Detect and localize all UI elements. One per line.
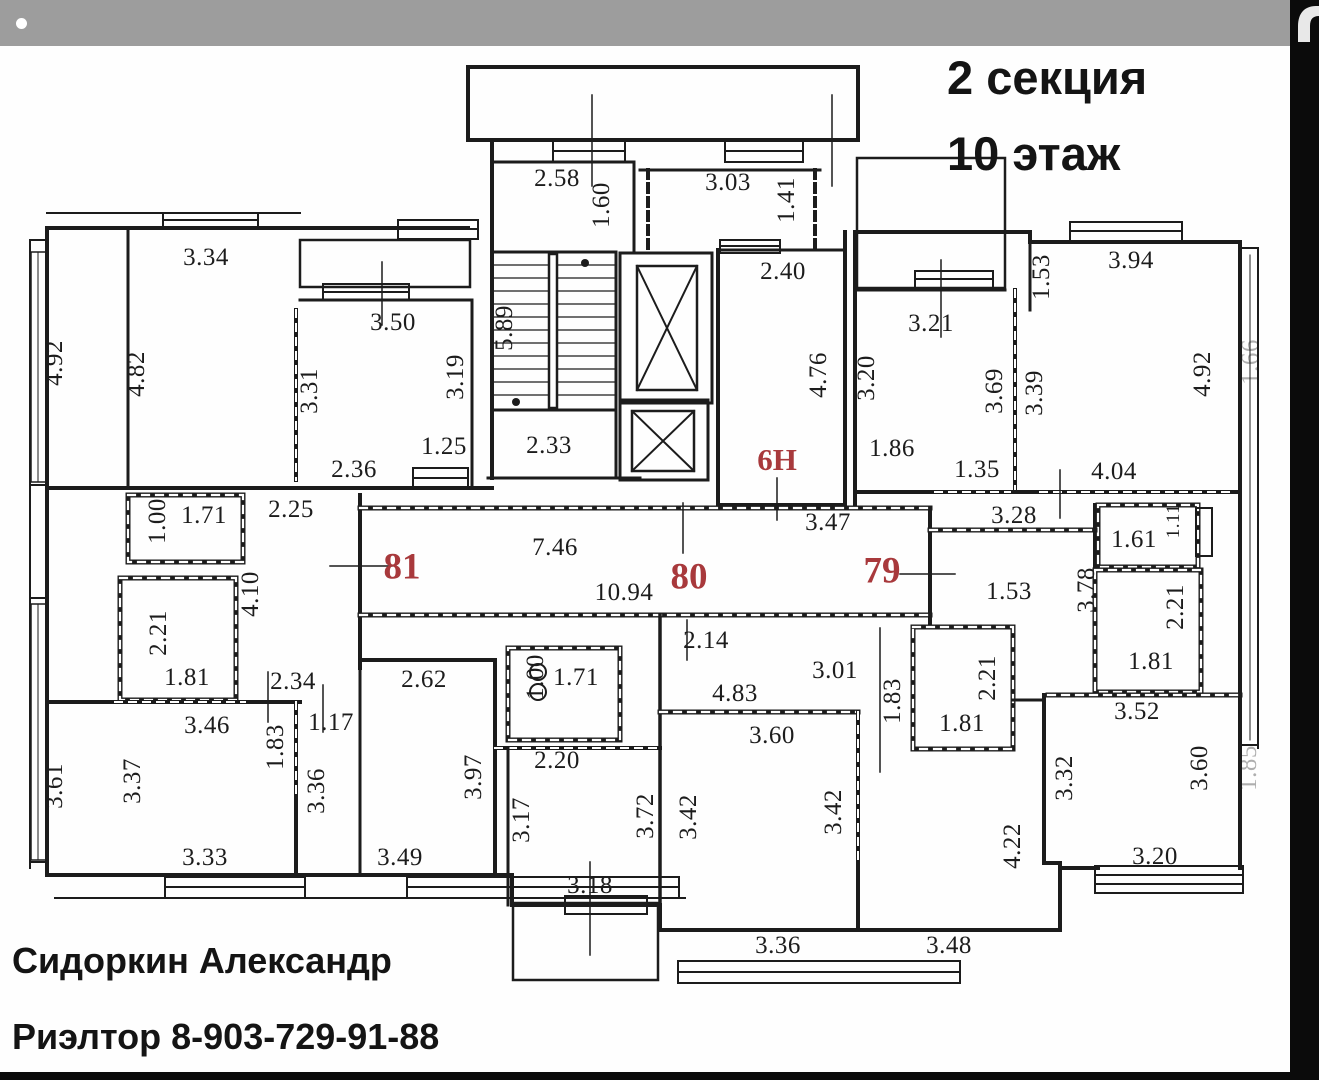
core-walls: [488, 140, 845, 505]
phone-handset-icon[interactable]: [1290, 0, 1319, 60]
appliance-icon: [530, 664, 546, 700]
right-edge-bar: [1290, 0, 1319, 1080]
top-gray-bar: [0, 0, 1319, 46]
floor-title: 10 этаж: [947, 126, 1120, 181]
outer-walls: [47, 67, 1240, 930]
right-mid-walls: [930, 505, 1240, 695]
section-title: 2 секция: [947, 50, 1147, 105]
elevator-shaft-icon: [620, 253, 712, 480]
floorplan-drawing: [0, 0, 1319, 1080]
realtor-phone: Риэлтор 8-903-729-91-88: [12, 1016, 439, 1058]
screenshot-root: 2.581.603.031.412.404.765.892.331.252.36…: [0, 0, 1319, 1080]
right-balcony-strip: [1240, 248, 1258, 748]
bullet-dot: [16, 18, 27, 29]
center-walls: [495, 615, 1060, 930]
left-balcony-strip: [30, 213, 300, 868]
right-wing-walls: [855, 158, 1240, 492]
dimension-ticks: [268, 95, 1060, 955]
left-wing-walls: [47, 228, 495, 875]
corridor-walls: [360, 495, 930, 668]
bottom-edge-bar: [0, 1072, 1319, 1080]
realtor-name: Сидоркин Александр: [12, 940, 392, 982]
stairs-icon: [492, 252, 616, 410]
